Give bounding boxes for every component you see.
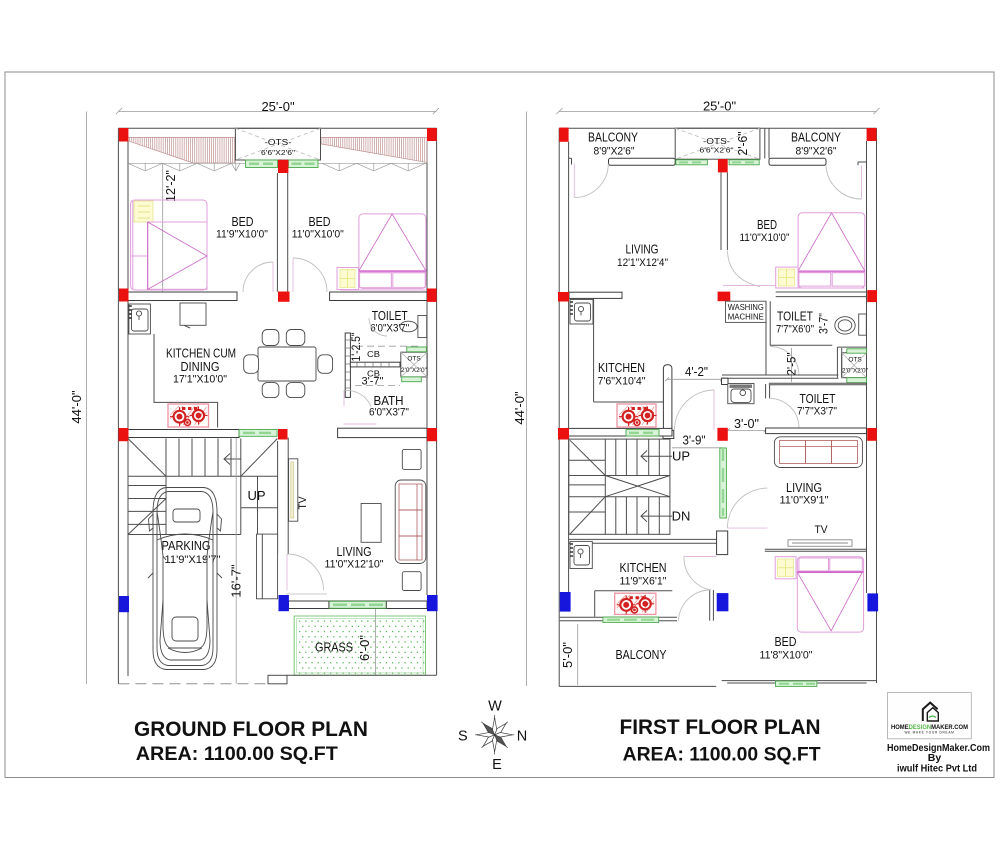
svg-text:UP: UP [247, 488, 265, 503]
svg-text:KITCHEN: KITCHEN [620, 560, 667, 575]
svg-text:MACHINE: MACHINE [728, 312, 764, 322]
svg-text:12'-2": 12'-2" [163, 170, 178, 202]
svg-text:25'-0": 25'-0" [261, 99, 295, 114]
svg-text:6'0"X3'7": 6'0"X3'7" [369, 407, 409, 419]
svg-text:3'-7": 3'-7" [817, 313, 831, 334]
svg-text:3'-9": 3'-9" [683, 433, 706, 448]
svg-text:iwulf Hitec Pvt Ltd: iwulf Hitec Pvt Ltd [897, 763, 977, 775]
svg-text:TV: TV [297, 496, 309, 510]
svg-text:TOILET: TOILET [777, 309, 813, 324]
svg-text:E: E [492, 757, 502, 773]
svg-text:16'-7": 16'-7" [229, 564, 244, 598]
svg-text:7'7"X3'7": 7'7"X3'7" [797, 406, 837, 418]
svg-text:OTS: OTS [848, 357, 862, 364]
svg-text:BED: BED [757, 217, 777, 232]
svg-text:TOILET: TOILET [800, 391, 836, 406]
svg-text:8'9"X2'6": 8'9"X2'6" [796, 146, 837, 158]
svg-text:WE MAKE YOUR DREAM: WE MAKE YOUR DREAM [904, 730, 954, 734]
svg-text:11'8"X10'0": 11'8"X10'0" [760, 650, 813, 662]
svg-text:11'0"X10'0": 11'0"X10'0" [292, 229, 344, 241]
svg-text:1'-2.5": 1'-2.5" [349, 333, 363, 362]
svg-text:W: W [488, 699, 502, 715]
svg-text:UP: UP [672, 449, 690, 464]
svg-text:44'-0": 44'-0" [512, 391, 527, 425]
svg-text:8'9"X2'6": 8'9"X2'6" [594, 146, 635, 158]
svg-text:KITCHEN: KITCHEN [598, 360, 645, 375]
svg-text:GRASS: GRASS [315, 640, 353, 655]
svg-text:11'9"X10'0": 11'9"X10'0" [216, 229, 268, 241]
svg-text:7'6"X10'4": 7'6"X10'4" [598, 376, 646, 388]
svg-text:DINING: DINING [181, 359, 220, 374]
svg-text:2'-5": 2'-5" [785, 353, 799, 376]
svg-text:BED: BED [309, 214, 331, 229]
svg-text:6'6"X2'6": 6'6"X2'6" [261, 148, 295, 157]
svg-text:OTS: OTS [407, 356, 421, 363]
svg-text:11'0"X10'0": 11'0"X10'0" [740, 232, 790, 244]
svg-text:11'9"X6'1": 11'9"X6'1" [620, 576, 667, 588]
svg-text:2'0"X2'0": 2'0"X2'0" [842, 368, 869, 375]
svg-text:S: S [458, 728, 468, 744]
svg-text:2'0"X2'0": 2'0"X2'0" [401, 367, 428, 374]
svg-text:-OTS-: -OTS- [265, 137, 292, 147]
svg-text:6'6"X2'6": 6'6"X2'6" [700, 146, 734, 155]
svg-text:LIVING: LIVING [626, 242, 659, 257]
svg-text:BALCONY: BALCONY [791, 130, 841, 145]
svg-text:AREA: 1100.00 SQ.FT: AREA: 1100.00 SQ.FT [136, 743, 338, 765]
svg-text:11'9"X19'7": 11'9"X19'7" [165, 554, 221, 566]
svg-text:DN: DN [672, 509, 691, 524]
svg-text:PARKING: PARKING [162, 538, 211, 553]
svg-text:12'1"X12'4": 12'1"X12'4" [617, 257, 668, 269]
svg-text:LIVING: LIVING [786, 480, 822, 495]
svg-text:11'0"X12'10": 11'0"X12'10" [325, 559, 384, 571]
svg-text:17'1"X10'0": 17'1"X10'0" [173, 374, 227, 386]
svg-text:LIVING: LIVING [337, 544, 372, 559]
svg-text:FIRST FLOOR PLAN: FIRST FLOOR PLAN [620, 715, 821, 739]
svg-text:N: N [517, 728, 527, 744]
svg-text:25'-0": 25'-0" [703, 99, 737, 114]
svg-text:4'-2": 4'-2" [685, 364, 708, 379]
svg-text:7'7"X6'0": 7'7"X6'0" [776, 324, 814, 336]
svg-text:BALCONY: BALCONY [588, 130, 638, 145]
svg-text:CB: CB [367, 349, 380, 359]
svg-text:BED: BED [232, 214, 254, 229]
svg-text:TOILET: TOILET [372, 308, 408, 323]
svg-text:11'0"X9'1": 11'0"X9'1" [780, 495, 829, 507]
svg-text:2'-6": 2'-6" [735, 131, 750, 155]
svg-text:WASHING: WASHING [728, 302, 764, 312]
svg-text:-OTS-: -OTS- [703, 136, 730, 146]
svg-text:6'-0": 6'-0" [357, 635, 372, 661]
svg-text:GROUND FLOOR PLAN: GROUND FLOOR PLAN [134, 717, 368, 741]
svg-text:44'-0": 44'-0" [69, 390, 84, 424]
svg-text:BED: BED [775, 634, 797, 649]
svg-text:5'-0": 5'-0" [560, 642, 575, 668]
svg-text:TV: TV [815, 524, 829, 536]
svg-text:AREA: 1100.00 SQ.FT: AREA: 1100.00 SQ.FT [623, 744, 821, 766]
svg-text:BALCONY: BALCONY [616, 647, 667, 662]
svg-text:3'-0": 3'-0" [734, 416, 759, 431]
